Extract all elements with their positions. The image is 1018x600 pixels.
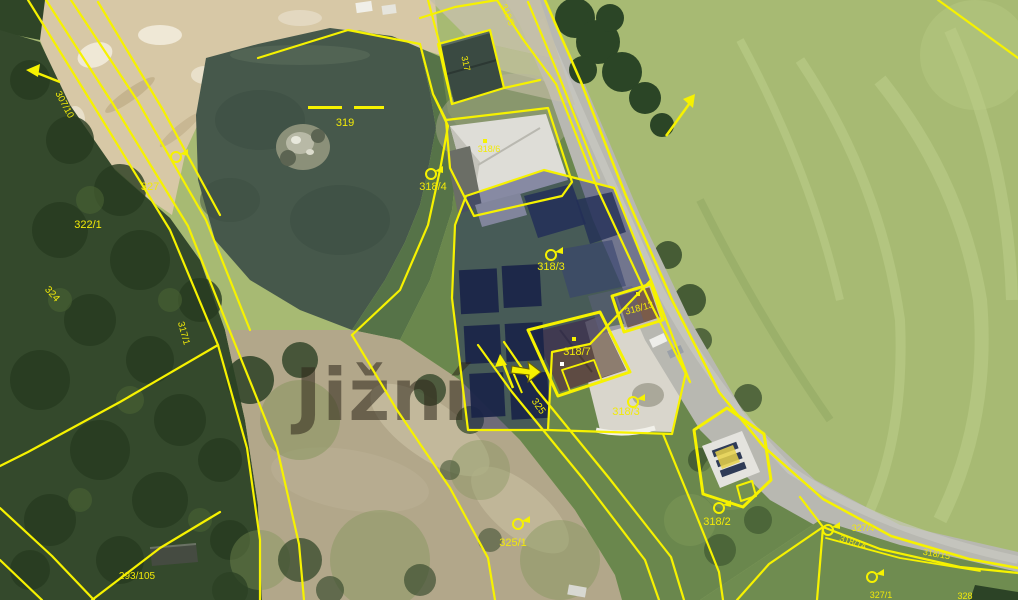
parcel-label-318-3-selected[interactable]: 318/3 <box>537 261 565 273</box>
parcel-label-319[interactable]: 319 <box>336 117 354 129</box>
parcel-label-322-1[interactable]: 322/1 <box>74 219 102 231</box>
parcel-label-325-1[interactable]: 325/1 <box>499 537 527 549</box>
map-canvas[interactable]: Jižní <box>0 0 1018 600</box>
parcel-label-318-4[interactable]: 318/4 <box>419 181 447 193</box>
parcel-label-318-6[interactable]: 318/6 <box>478 144 501 154</box>
parcel-label-327-4[interactable]: 327/4 <box>852 523 875 533</box>
parcel-label-328[interactable]: 328 <box>957 591 972 600</box>
cadastral-map-svg: Jižní <box>0 0 1018 600</box>
parcel-label-318-3-garden[interactable]: 318/3 <box>612 406 640 418</box>
parcel-label-327-1[interactable]: 327/1 <box>870 590 893 600</box>
parcel-label-293-105[interactable]: 293/105 <box>119 571 156 582</box>
parcel-label-327[interactable]: 327 <box>141 181 159 193</box>
parcel-label-318-2[interactable]: 318/2 <box>703 516 731 528</box>
watermark-text: Jižní <box>290 353 472 437</box>
parcel-label-318-7[interactable]: 318/7 <box>563 346 591 358</box>
